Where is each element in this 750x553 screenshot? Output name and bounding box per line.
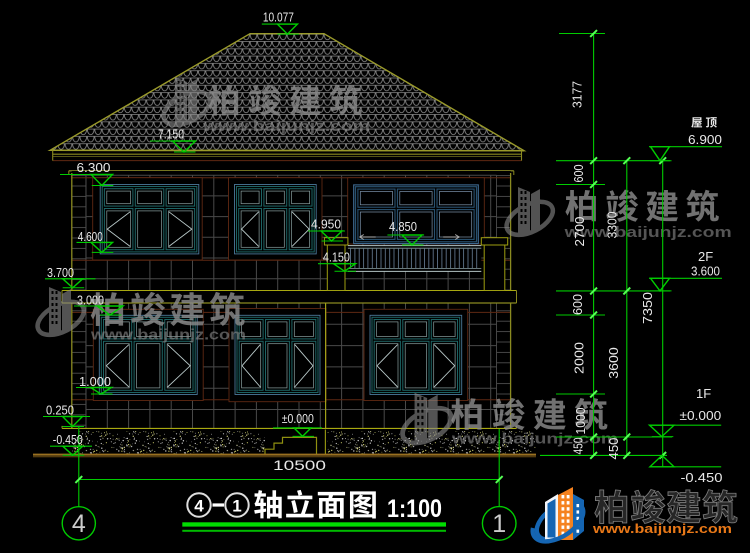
svg-text:4.850: 4.850 xyxy=(389,219,417,234)
svg-text:-0.450: -0.450 xyxy=(681,470,723,485)
svg-text:-0.450: -0.450 xyxy=(53,432,83,447)
svg-text:450: 450 xyxy=(571,438,586,455)
svg-text:www.baijunjz.com: www.baijunjz.com xyxy=(90,327,246,344)
svg-text:4: 4 xyxy=(72,510,86,538)
svg-text:1: 1 xyxy=(232,497,241,516)
svg-text:450: 450 xyxy=(606,438,621,460)
svg-text:www.baijunjz.com: www.baijunjz.com xyxy=(592,522,732,536)
svg-text:3.600: 3.600 xyxy=(691,264,720,279)
svg-text:3.700: 3.700 xyxy=(47,265,74,280)
svg-text:1000: 1000 xyxy=(573,408,588,435)
svg-text:1: 1 xyxy=(492,510,506,538)
svg-text:3177: 3177 xyxy=(570,81,585,108)
svg-text:2F: 2F xyxy=(698,249,713,264)
svg-text:10500: 10500 xyxy=(273,457,326,473)
svg-text:1:100: 1:100 xyxy=(387,495,442,523)
svg-text:3.000: 3.000 xyxy=(77,293,104,308)
svg-text:4: 4 xyxy=(194,497,204,516)
svg-text:2700: 2700 xyxy=(572,217,587,247)
svg-text:4.950: 4.950 xyxy=(311,217,341,232)
svg-text:6.900: 6.900 xyxy=(688,132,722,147)
svg-text:www.baijunjz.com: www.baijunjz.com xyxy=(563,224,731,241)
svg-text:0.250: 0.250 xyxy=(46,403,74,418)
svg-text:10.077: 10.077 xyxy=(263,10,294,25)
svg-text:600: 600 xyxy=(571,165,586,183)
svg-text:±0.000: ±0.000 xyxy=(282,411,314,426)
svg-text:±0.000: ±0.000 xyxy=(680,408,722,423)
svg-text:1F: 1F xyxy=(696,386,711,401)
svg-text:7.150: 7.150 xyxy=(158,126,184,141)
svg-text:2000: 2000 xyxy=(572,342,587,374)
svg-text:3300: 3300 xyxy=(605,212,620,239)
svg-text:600: 600 xyxy=(570,294,585,315)
svg-text:7350: 7350 xyxy=(640,292,655,324)
svg-text:4.150: 4.150 xyxy=(323,250,350,265)
svg-text:6.300: 6.300 xyxy=(77,160,111,175)
svg-text:1.000: 1.000 xyxy=(79,374,111,389)
svg-text:www.baijunjz.com: www.baijunjz.com xyxy=(202,118,370,135)
svg-text:3600: 3600 xyxy=(606,347,621,379)
